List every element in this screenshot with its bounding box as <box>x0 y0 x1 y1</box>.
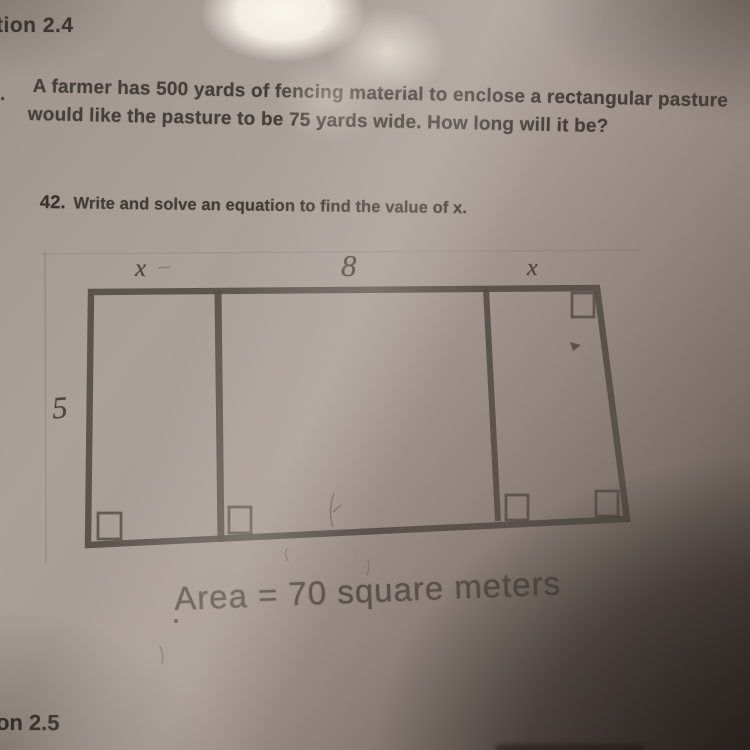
guide-line-vertical <box>45 252 46 563</box>
height-label-5: 5 <box>51 390 69 427</box>
worksheet-photo: tion 2.4 . A farmer has 500 yards of fen… <box>0 0 750 750</box>
ink-speck <box>174 619 178 623</box>
right-angle-marker-top-right <box>572 293 594 317</box>
outer-rectangle <box>88 288 627 545</box>
rectangle-figure <box>0 0 750 750</box>
right-angle-marker-bottom-right <box>596 491 618 516</box>
right-angle-marker-mid-bottom <box>229 507 251 533</box>
right-angle-marker-right-bottom-left <box>506 495 528 520</box>
divider-right <box>486 289 498 521</box>
dash-after-x-label <box>158 267 170 268</box>
stray-arrow-mark <box>570 342 581 351</box>
width-label-right-x: x <box>527 255 538 282</box>
pencil-tick-below-figure <box>286 548 288 561</box>
width-label-middle-8: 8 <box>341 248 357 284</box>
section-header-bottom: on 2.5 <box>0 710 60 737</box>
cutoff-text-smudge <box>495 744 645 750</box>
right-angle-marker-bottom-left <box>98 513 121 539</box>
divider-left <box>218 291 221 542</box>
width-label-left-x: x <box>135 255 146 283</box>
pencil-scribble <box>330 493 341 527</box>
pencil-mark-lower-left <box>160 646 163 664</box>
